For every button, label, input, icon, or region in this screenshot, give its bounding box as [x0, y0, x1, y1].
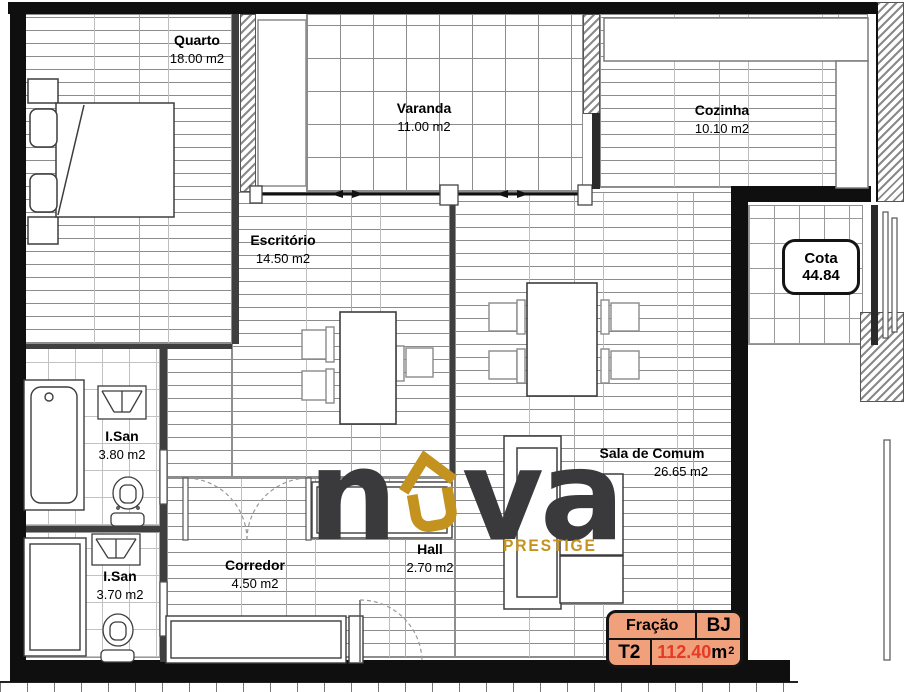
room-name: I.San: [97, 568, 144, 585]
quarto-right-wall: [232, 14, 239, 344]
bathrooms-divider-wall: [26, 526, 160, 532]
room-label-isan2: I.San 3.70 m2: [97, 568, 144, 603]
room-label-escritorio: Escritório 14.50 m2: [250, 232, 315, 267]
cota-label: Cota: [804, 250, 837, 267]
cozinha-floor: [600, 14, 868, 188]
quarto-bottom-wall: [26, 344, 232, 349]
corridor-upper-floor: [167, 348, 232, 478]
room-name: Cozinha: [695, 102, 749, 119]
room-label-quarto: Quarto 18.00 m2: [170, 32, 224, 67]
brand-tagline: PRESTIGE: [503, 536, 597, 556]
legend-row-top: Fração BJ: [609, 613, 740, 640]
varanda-planter: [258, 20, 306, 186]
typology-value: T2: [609, 640, 652, 665]
room-label-hall: Hall 2.70 m2: [407, 541, 454, 576]
outer-wall-top: [8, 2, 880, 14]
room-label-sala: Sala de Comum 26.65 m2: [596, 445, 708, 480]
area-exponent: 2: [728, 645, 734, 657]
room-name: I.San: [99, 428, 146, 445]
room-area: 11.00 m2: [397, 119, 451, 135]
fraction-legend: Fração BJ T2 112.40m2: [606, 610, 743, 668]
room-label-varanda: Varanda 11.00 m2: [397, 100, 451, 135]
varanda-wall-hatch-right: [583, 14, 600, 114]
exterior-walkway-tiles: [0, 681, 798, 692]
cota-value: 44.84: [802, 267, 840, 284]
cota-badge: Cota 44.84: [782, 239, 860, 295]
room-label-cozinha: Cozinha 10.10 m2: [695, 102, 749, 137]
fraction-label: Fração: [609, 613, 697, 638]
room-area: 2.70 m2: [407, 560, 454, 576]
room-area: 18.00 m2: [170, 51, 224, 67]
room-name: Varanda: [397, 100, 451, 117]
room-area: 26.65 m2: [654, 464, 708, 480]
room-label-corredor: Corredor 4.50 m2: [225, 557, 285, 592]
room-area: 4.50 m2: [225, 576, 285, 592]
sala-floor: [455, 192, 733, 658]
terrace-window-frames: [871, 205, 897, 660]
varanda-wall-hatch-left: [240, 14, 256, 192]
room-label-isan1: I.San 3.80 m2: [99, 428, 146, 463]
room-name: Escritório: [250, 232, 315, 249]
outer-wall-right: [731, 186, 748, 662]
floor-plan: n va PRESTIGE Quarto 18.00 m2 Varanda 11…: [0, 0, 904, 692]
room-area: 3.70 m2: [97, 587, 144, 603]
legend-row-bottom: T2 112.40m2: [609, 640, 740, 665]
area-unit: m: [711, 642, 727, 663]
outer-wall-left: [10, 2, 26, 662]
area-value: 112.40: [657, 642, 711, 663]
room-name: Corredor: [225, 557, 285, 574]
room-name: Hall: [407, 541, 454, 558]
fraction-value: BJ: [697, 613, 740, 638]
escritorio-right-wall: [450, 196, 455, 474]
bathrooms-right-wall: [160, 344, 167, 662]
outer-wall-hatch-right: [876, 2, 904, 202]
kitchen-bottom-wall: [731, 186, 871, 202]
room-name: Quarto: [170, 32, 224, 49]
kitchen-door-leaf: [592, 113, 600, 189]
area-cell: 112.40m2: [652, 640, 740, 665]
room-area: 3.80 m2: [99, 447, 146, 463]
right-wall-hatch-block: [860, 312, 904, 402]
room-area: 14.50 m2: [250, 251, 315, 267]
room-name: Sala de Comum: [596, 445, 708, 462]
room-area: 10.10 m2: [695, 121, 749, 137]
